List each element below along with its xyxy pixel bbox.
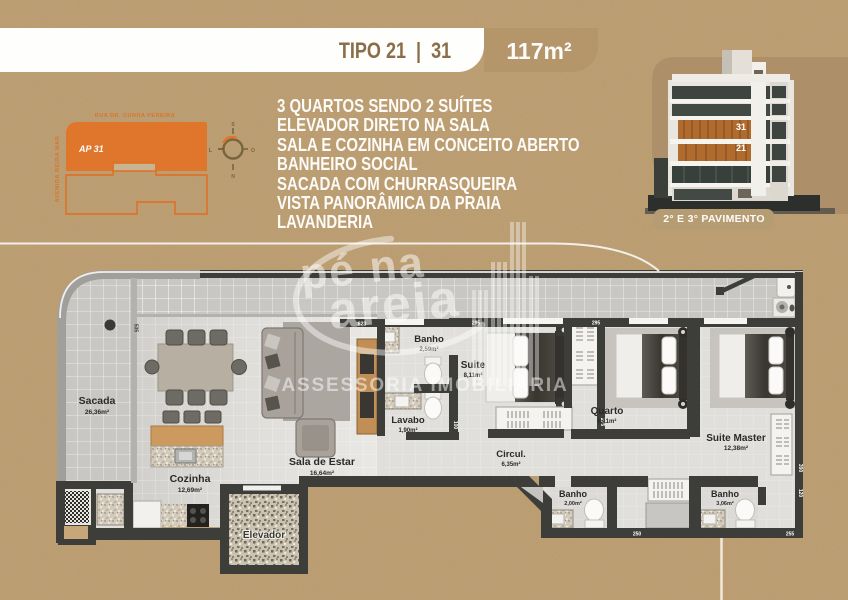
svg-text:Banho: Banho xyxy=(559,489,588,499)
svg-text:Elevador: Elevador xyxy=(243,530,285,541)
svg-text:8,11m²: 8,11m² xyxy=(598,418,617,425)
svg-text:3,06m²: 3,06m² xyxy=(716,500,734,507)
svg-text:Lavabo: Lavabo xyxy=(391,415,424,426)
svg-text:12,69m²: 12,69m² xyxy=(178,487,203,494)
svg-text:Circul.: Circul. xyxy=(496,449,526,460)
svg-text:Suite Master: Suite Master xyxy=(706,433,766,444)
svg-text:Banho: Banho xyxy=(711,489,740,499)
svg-text:ASSESSORIA IMOBILIÁRIA: ASSESSORIA IMOBILIÁRIA xyxy=(282,374,569,396)
svg-text:Quarto: Quarto xyxy=(591,406,624,417)
svg-text:120: 120 xyxy=(797,489,803,498)
svg-text:535: 535 xyxy=(133,324,139,333)
svg-text:6,35m²: 6,35m² xyxy=(501,461,520,468)
svg-text:1,90m²: 1,90m² xyxy=(398,427,417,434)
svg-text:250: 250 xyxy=(633,532,642,538)
svg-text:26,36m²: 26,36m² xyxy=(85,409,110,416)
svg-text:12,38m²: 12,38m² xyxy=(724,445,749,452)
svg-text:2,00m²: 2,00m² xyxy=(564,500,582,507)
svg-text:Cozinha: Cozinha xyxy=(170,473,211,485)
svg-text:16,64m²: 16,64m² xyxy=(310,470,335,477)
svg-text:390: 390 xyxy=(797,464,803,473)
svg-text:295: 295 xyxy=(592,321,601,327)
svg-text:100: 100 xyxy=(452,421,458,430)
svg-text:Sala de Estar: Sala de Estar xyxy=(289,456,355,468)
svg-text:255: 255 xyxy=(786,532,795,538)
svg-text:Sacada: Sacada xyxy=(79,395,116,407)
